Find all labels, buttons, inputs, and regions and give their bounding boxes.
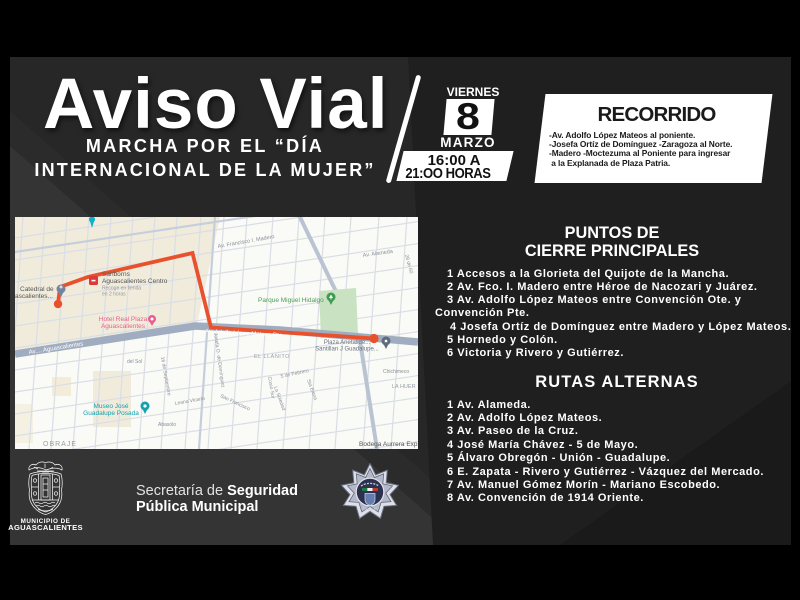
svg-text:Aguascalientes Centro: Aguascalientes Centro: [102, 278, 168, 285]
svg-text:Guadalupe Posada: Guadalupe Posada: [83, 410, 139, 417]
svg-text:OBRAJE: OBRAJE: [43, 441, 77, 448]
svg-text:Abasolo: Abasolo: [158, 422, 176, 428]
svg-text:Hotel Real Plaza: Hotel Real Plaza: [99, 316, 148, 323]
svg-text:Parque Miguel Hidalgo: Parque Miguel Hidalgo: [258, 297, 324, 304]
svg-text:EL LLANITO: EL LLANITO: [254, 354, 290, 360]
svg-text:Santillan J Guadalupe...: Santillan J Guadalupe...: [315, 347, 379, 353]
svg-text:Sanborns: Sanborns: [102, 271, 131, 278]
svg-text:Catedral de: Catedral de: [20, 286, 54, 293]
svg-text:Plaza Anetalide...: Plaza Anetalide...: [324, 340, 371, 346]
svg-text:LA HUER: LA HUER: [392, 384, 416, 390]
svg-text:Aguascalientes: Aguascalientes: [101, 323, 146, 330]
svg-text:Museo José: Museo José: [93, 403, 128, 410]
svg-text:del Sol: del Sol: [127, 359, 142, 365]
svg-text:en 2 horas: en 2 horas: [102, 292, 126, 298]
svg-text:Bodega Aurrera Exp: Bodega Aurrera Exp: [359, 441, 418, 448]
svg-text:ascalientes...: ascalientes...: [15, 293, 53, 300]
svg-text:Chichimeco: Chichimeco: [383, 369, 409, 375]
